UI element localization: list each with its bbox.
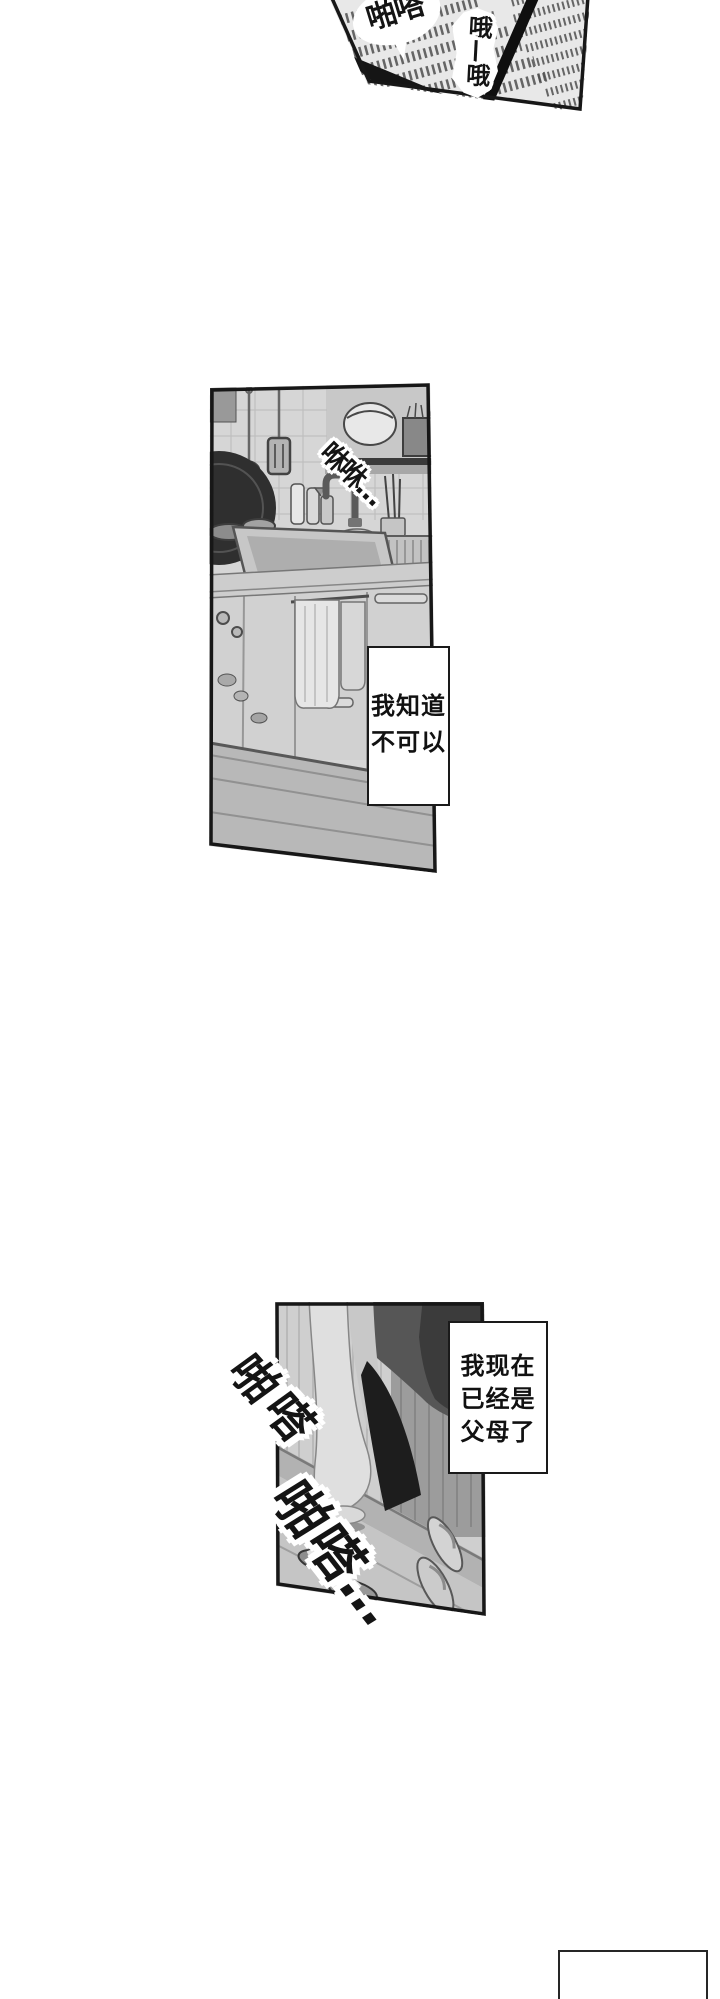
speech-box-entryway: 我现在 已经是 父母了 <box>448 1321 548 1474</box>
sfx-oh-text: 哦—哦 <box>458 14 497 88</box>
speech-line: 我现在 <box>450 1350 546 1383</box>
speech-box-kitchen: 我知道 不可以 <box>367 646 450 806</box>
next-panel-partial <box>558 1950 708 1999</box>
speech-line: 不可以 <box>369 724 448 760</box>
manga-page: 啪嗒 哦—哦 <box>0 0 720 1999</box>
speech-line: 已经是 <box>450 1383 546 1416</box>
speech-line: 我知道 <box>369 688 448 724</box>
speech-line: 父母了 <box>450 1416 546 1449</box>
